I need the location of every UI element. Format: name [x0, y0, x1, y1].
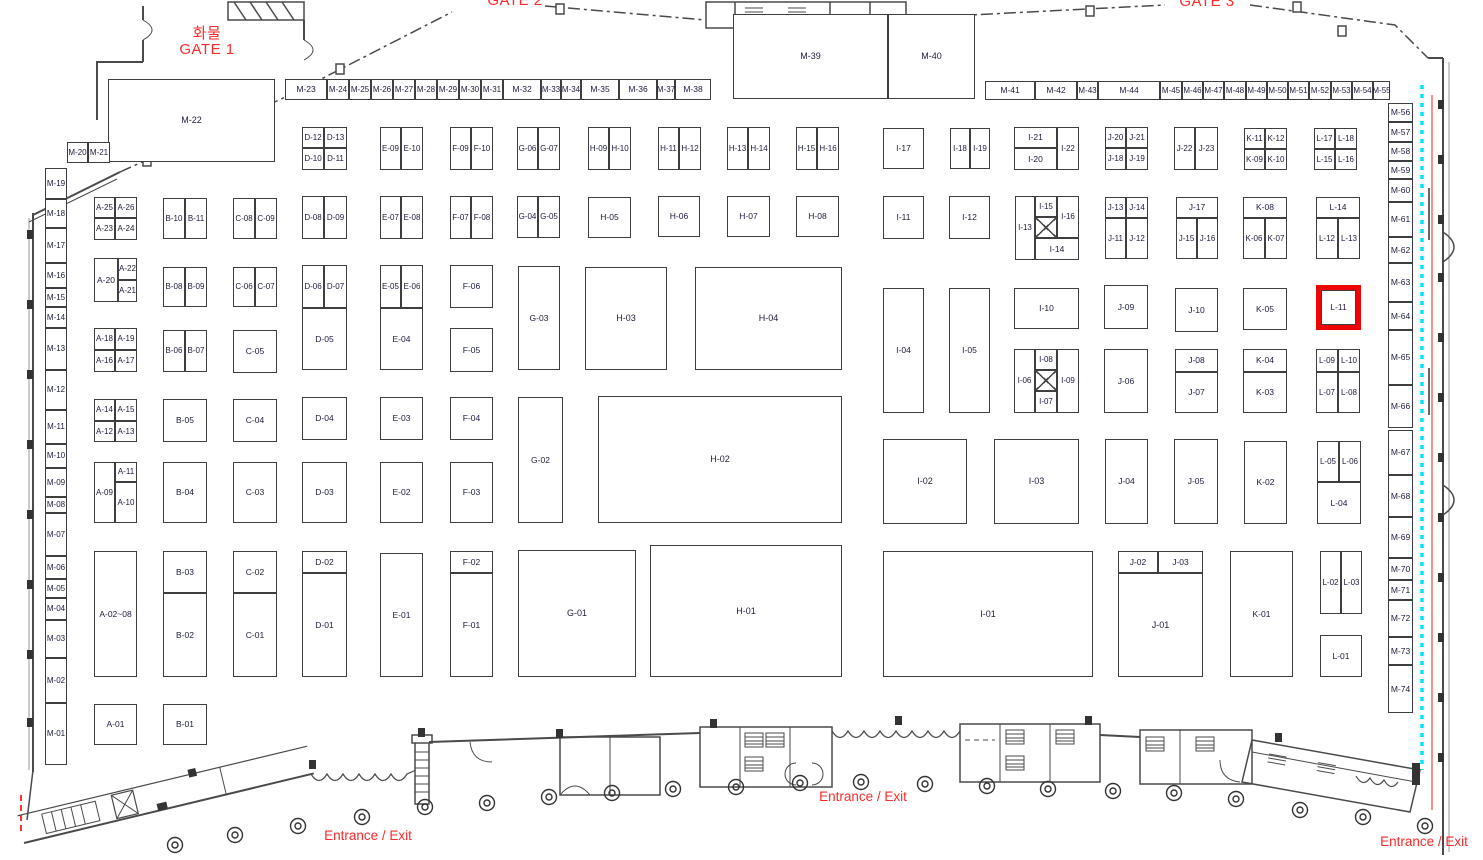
booth-C-03: C-03	[233, 462, 277, 523]
booth-J-22: J-22	[1174, 127, 1195, 170]
booth-D-07: D-07	[324, 265, 347, 308]
booth-M-42: M-42	[1035, 81, 1077, 100]
booth-M-25: M-25	[349, 79, 371, 100]
booth-D-03: D-03	[302, 462, 347, 523]
booth-M-49: M-49	[1246, 81, 1267, 100]
booth-J-05: J-05	[1174, 439, 1218, 524]
booth-F-08: F-08	[471, 196, 493, 239]
booth-M-10: M-10	[45, 444, 67, 468]
booth-K-10: K-10	[1265, 149, 1287, 170]
booth-H-08: H-08	[796, 196, 839, 237]
booth-J-08: J-08	[1175, 349, 1218, 372]
booth-J-11: J-11	[1105, 218, 1126, 259]
booth-A-19: A-19	[115, 328, 137, 350]
booth-M-54: M-54	[1352, 81, 1373, 100]
booth-L-16: L-16	[1335, 149, 1357, 170]
booth-F-05: F-05	[450, 328, 493, 372]
booth-M-14: M-14	[45, 307, 67, 328]
booth-M-33: M-33	[541, 79, 561, 100]
booth-M-71: M-71	[1388, 580, 1413, 600]
booth-A-20: A-20	[94, 258, 118, 302]
booth-J-09: J-09	[1104, 285, 1148, 329]
booth-M-17: M-17	[45, 228, 67, 263]
booth-J-14: J-14	[1126, 197, 1148, 218]
booth-M-45: M-45	[1160, 81, 1182, 100]
booth-J-04: J-04	[1105, 439, 1148, 524]
booth-J-21: J-21	[1126, 127, 1148, 148]
booth-M-16: M-16	[45, 263, 67, 288]
booth-D-02: D-02	[302, 551, 347, 573]
booth-M-57: M-57	[1388, 122, 1413, 142]
booth-M-21: M-21	[88, 142, 110, 163]
booth-E-04: E-04	[380, 308, 423, 370]
booth-A-18: A-18	[94, 328, 115, 350]
booth-M-37: M-37	[657, 79, 675, 100]
booth-K-08: K-08	[1243, 197, 1287, 218]
booth-M-41: M-41	[985, 81, 1035, 100]
booth-J-13: J-13	[1105, 197, 1126, 218]
booth-M-32: M-32	[503, 79, 541, 100]
booth-L-02: L-02	[1320, 551, 1341, 614]
booth-G-03: G-03	[518, 266, 560, 370]
booth-E-07: E-07	[380, 196, 401, 239]
booth-D-01: D-01	[302, 573, 347, 677]
booth-I-09: I-09	[1057, 349, 1079, 413]
booth-M-08: M-08	[45, 497, 67, 513]
booth-K-03: K-03	[1243, 372, 1287, 413]
booth-M-73: M-73	[1388, 637, 1413, 665]
entrance-exit-right-label: Entrance / Exit	[1380, 834, 1468, 849]
booth-J-17: J-17	[1176, 197, 1218, 218]
booth-C-02: C-02	[233, 551, 277, 593]
booth-H-09: H-09	[588, 127, 609, 170]
entrance-exit-left-label: Entrance / Exit	[324, 828, 412, 843]
booth-A-26: A-26	[115, 197, 137, 218]
booth-I-04: I-04	[883, 288, 924, 413]
booth-M-36: M-36	[619, 79, 657, 100]
booth-M-70: M-70	[1388, 558, 1413, 580]
booth-M-74: M-74	[1388, 665, 1413, 713]
booth-E-01: E-01	[380, 553, 423, 677]
booth-H-04: H-04	[695, 267, 842, 370]
booth-A-22: A-22	[118, 258, 137, 280]
booth-M-63: M-63	[1388, 263, 1413, 302]
booth-M-09: M-09	[45, 468, 67, 497]
booth-A-17: A-17	[115, 350, 137, 372]
booth-E-06: E-06	[401, 265, 423, 308]
booth-H-11: H-11	[658, 127, 679, 170]
booth-I-08: I-08	[1035, 349, 1057, 370]
booth-M-24: M-24	[327, 79, 349, 100]
booth-M-03: M-03	[45, 620, 67, 658]
booth-M-50: M-50	[1267, 81, 1288, 100]
booth-A-01: A-01	[94, 704, 137, 745]
booth-D-08: D-08	[302, 196, 324, 239]
booth-I-21: I-21	[1014, 127, 1057, 148]
booth-E-09: E-09	[380, 127, 401, 170]
booth-J-01: J-01	[1118, 573, 1203, 677]
booth-E-08: E-08	[401, 196, 423, 239]
booth-A-09: A-09	[94, 462, 115, 523]
booth-I-14: I-14	[1035, 238, 1079, 260]
booth-M-53: M-53	[1331, 81, 1352, 100]
booth-I-13: I-13	[1015, 196, 1035, 260]
booth-M-39: M-39	[733, 14, 888, 99]
booth-C-04: C-04	[233, 399, 277, 442]
booth-M-11: M-11	[45, 410, 67, 444]
booth-A-02~08: A-02~08	[94, 551, 137, 677]
booth-L-18: L-18	[1335, 128, 1357, 149]
booth-I-19: I-19	[970, 128, 990, 169]
booth-J-03: J-03	[1158, 551, 1203, 573]
booth-M-52: M-52	[1309, 81, 1331, 100]
booth-A-12: A-12	[94, 421, 115, 442]
booth-A-21: A-21	[118, 280, 137, 302]
booth-M-51: M-51	[1288, 81, 1309, 100]
booth-A-10: A-10	[115, 482, 137, 523]
booth-L-05: L-05	[1317, 441, 1339, 482]
booth-B-05: B-05	[163, 399, 207, 442]
booth-K-11: K-11	[1244, 128, 1265, 149]
booth-K-12: K-12	[1265, 128, 1287, 149]
booth-B-09: B-09	[185, 267, 207, 307]
booth-D-04: D-04	[302, 397, 347, 440]
booth-G-06: G-06	[517, 127, 538, 170]
booth-I-12: I-12	[949, 196, 990, 239]
booth-M-43: M-43	[1077, 81, 1098, 100]
booth-H-14: H-14	[748, 127, 770, 170]
booth-C-01: C-01	[233, 593, 277, 677]
booth-M-62: M-62	[1388, 237, 1413, 263]
booth-B-06: B-06	[163, 330, 185, 372]
booth-J-19: J-19	[1126, 148, 1148, 170]
booth-M-02: M-02	[45, 658, 67, 703]
booth-M-31: M-31	[481, 79, 503, 100]
booth-M-61: M-61	[1388, 202, 1413, 237]
booth-I-10: I-10	[1014, 288, 1079, 329]
booth-H-03: H-03	[585, 267, 667, 370]
booth-D-10: D-10	[302, 148, 324, 170]
booth-J-16: J-16	[1197, 218, 1218, 259]
booth-M-01: M-01	[45, 703, 67, 765]
booth-L-15: L-15	[1314, 149, 1335, 170]
booth-D-12: D-12	[302, 127, 324, 148]
booth-M-15: M-15	[45, 288, 67, 307]
gate2-label: GATE 2	[487, 0, 542, 9]
booth-M-48: M-48	[1224, 81, 1246, 100]
booth-A-14: A-14	[94, 399, 115, 421]
booth-L-11: L-11	[1316, 285, 1361, 330]
booth-F-01: F-01	[450, 573, 493, 677]
booth-E-03: E-03	[380, 397, 423, 440]
booth-B-03: B-03	[163, 551, 207, 593]
booth-L-17: L-17	[1314, 128, 1335, 149]
booth-F-10: F-10	[471, 127, 493, 170]
booth-G-07: G-07	[538, 127, 560, 170]
booth-B-04: B-04	[163, 462, 207, 523]
booth-L-12: L-12	[1316, 218, 1338, 259]
booth-M-27: M-27	[393, 79, 415, 100]
booth-A-13: A-13	[115, 421, 137, 442]
booth-C-09: C-09	[255, 198, 277, 239]
booth-M-67: M-67	[1388, 430, 1413, 475]
booth-A-23: A-23	[94, 218, 115, 240]
booth-K-01: K-01	[1230, 551, 1293, 677]
booth-H-16: H-16	[817, 127, 839, 170]
booth-J-07: J-07	[1175, 372, 1218, 413]
booth-I-07: I-07	[1035, 391, 1057, 413]
booth-M-58: M-58	[1388, 142, 1413, 161]
booth-L-13: L-13	[1338, 218, 1360, 259]
booth-K-04: K-04	[1243, 349, 1287, 372]
booth-D-05: D-05	[302, 308, 347, 370]
booth-E-02: E-02	[380, 462, 423, 523]
booth-D-13: D-13	[324, 127, 347, 148]
booth-J-12: J-12	[1126, 218, 1148, 259]
booth-M-06: M-06	[45, 556, 67, 579]
booth-M-56: M-56	[1388, 103, 1413, 122]
booth-M-60: M-60	[1388, 179, 1413, 202]
booth-I-06: I-06	[1014, 349, 1035, 413]
booth-C-05: C-05	[233, 330, 277, 373]
booth-K-05: K-05	[1243, 288, 1287, 330]
booth-M-72: M-72	[1388, 600, 1413, 637]
booth-A-11: A-11	[115, 462, 137, 482]
booth-I-01: I-01	[883, 551, 1093, 677]
booth-J-18: J-18	[1105, 148, 1126, 170]
booth-L-01: L-01	[1320, 635, 1362, 677]
booth-L-09: L-09	[1316, 349, 1338, 372]
booth-B-08: B-08	[163, 267, 185, 307]
booth-M-20: M-20	[67, 142, 88, 163]
booth-J-10: J-10	[1175, 288, 1218, 332]
booth-H-10: H-10	[609, 127, 631, 170]
booth-F-07: F-07	[450, 196, 471, 239]
booth-L-14: L-14	[1316, 197, 1360, 218]
booth-K-06: K-06	[1243, 218, 1265, 259]
booth-crossed-cell	[1035, 370, 1057, 391]
booth-M-59: M-59	[1388, 161, 1413, 179]
booth-M-26: M-26	[371, 79, 393, 100]
booth-J-15: J-15	[1176, 218, 1197, 259]
booth-M-22: M-22	[108, 79, 275, 162]
booth-L-08: L-08	[1338, 372, 1360, 413]
booth-M-28: M-28	[415, 79, 437, 100]
exhibition-floor-plan: A-25A-26A-23A-24A-20A-22A-21A-18A-19A-16…	[0, 0, 1483, 860]
booth-C-07: C-07	[255, 267, 277, 307]
booth-layer: A-25A-26A-23A-24A-20A-22A-21A-18A-19A-16…	[0, 0, 1483, 860]
booth-M-30: M-30	[459, 79, 481, 100]
booth-M-07: M-07	[45, 513, 67, 556]
booth-B-01: B-01	[163, 704, 207, 745]
booth-I-15: I-15	[1035, 196, 1057, 217]
booth-M-19: M-19	[45, 168, 67, 199]
booth-L-03: L-03	[1341, 551, 1362, 614]
booth-M-64: M-64	[1388, 302, 1413, 330]
booth-H-13: H-13	[727, 127, 748, 170]
booth-I-03: I-03	[994, 439, 1079, 524]
booth-F-06: F-06	[450, 265, 493, 308]
booth-A-15: A-15	[115, 399, 137, 421]
booth-M-18: M-18	[45, 199, 67, 228]
booth-E-05: E-05	[380, 265, 401, 308]
cargo-gate-label: 화물	[193, 22, 222, 43]
booth-L-06: L-06	[1339, 441, 1361, 482]
booth-L-07: L-07	[1316, 372, 1338, 413]
booth-M-68: M-68	[1388, 475, 1413, 517]
booth-B-10: B-10	[163, 198, 185, 239]
booth-K-07: K-07	[1265, 218, 1287, 259]
booth-B-11: B-11	[185, 198, 207, 239]
booth-M-35: M-35	[581, 79, 619, 100]
booth-I-02: I-02	[883, 439, 967, 524]
booth-J-02: J-02	[1118, 551, 1158, 573]
booth-M-44: M-44	[1098, 81, 1160, 100]
gate1-label: GATE 1	[179, 41, 234, 58]
booth-M-66: M-66	[1388, 385, 1413, 428]
booth-M-23: M-23	[285, 79, 327, 100]
booth-D-09: D-09	[324, 196, 347, 239]
booth-E-10: E-10	[401, 127, 423, 170]
booth-H-12: H-12	[679, 127, 701, 170]
booth-C-08: C-08	[233, 198, 255, 239]
booth-C-06: C-06	[233, 267, 255, 307]
booth-M-47: M-47	[1203, 81, 1224, 100]
booth-M-46: M-46	[1182, 81, 1203, 100]
booth-crossed-cell	[1035, 217, 1057, 238]
booth-H-02: H-02	[598, 396, 842, 523]
booth-M-05: M-05	[45, 579, 67, 598]
booth-F-03: F-03	[450, 462, 493, 523]
gate3-label: GATE 3	[1179, 0, 1234, 10]
booth-L-04: L-04	[1317, 482, 1361, 524]
booth-M-34: M-34	[561, 79, 581, 100]
booth-J-23: J-23	[1195, 127, 1218, 170]
booth-K-02: K-02	[1244, 441, 1287, 524]
booth-A-24: A-24	[115, 218, 137, 240]
booth-H-05: H-05	[588, 197, 631, 238]
booth-D-06: D-06	[302, 265, 324, 308]
booth-M-69: M-69	[1388, 517, 1413, 558]
booth-I-18: I-18	[950, 128, 970, 169]
booth-M-55: M-55	[1373, 81, 1390, 100]
booth-H-07: H-07	[727, 196, 770, 237]
booth-H-01: H-01	[650, 545, 842, 677]
booth-I-11: I-11	[883, 196, 924, 239]
entrance-exit-center-label: Entrance / Exit	[819, 789, 907, 804]
booth-G-05: G-05	[538, 196, 560, 238]
booth-J-20: J-20	[1105, 127, 1126, 148]
booth-M-40: M-40	[888, 14, 975, 99]
booth-M-38: M-38	[675, 79, 711, 100]
booth-G-04: G-04	[517, 196, 538, 238]
booth-M-29: M-29	[437, 79, 459, 100]
booth-D-11: D-11	[324, 148, 347, 170]
booth-I-17: I-17	[883, 128, 924, 169]
booth-L-10: L-10	[1338, 349, 1360, 372]
booth-I-22: I-22	[1057, 127, 1079, 170]
booth-M-04: M-04	[45, 598, 67, 620]
booth-I-20: I-20	[1014, 148, 1057, 170]
booth-F-04: F-04	[450, 397, 493, 440]
booth-J-06: J-06	[1104, 349, 1148, 413]
booth-I-05: I-05	[949, 288, 990, 413]
booth-H-06: H-06	[658, 196, 700, 237]
booth-M-12: M-12	[45, 370, 67, 410]
booth-A-16: A-16	[94, 350, 115, 372]
booth-B-07: B-07	[185, 330, 207, 372]
booth-G-01: G-01	[518, 550, 636, 677]
booth-F-02: F-02	[450, 551, 493, 573]
booth-B-02: B-02	[163, 593, 207, 677]
booth-M-13: M-13	[45, 328, 67, 370]
booth-H-15: H-15	[796, 127, 817, 170]
booth-K-09: K-09	[1244, 149, 1265, 170]
booth-A-25: A-25	[94, 197, 115, 218]
booth-I-16: I-16	[1057, 196, 1079, 238]
booth-G-02: G-02	[518, 397, 563, 523]
booth-M-65: M-65	[1388, 330, 1413, 385]
booth-F-09: F-09	[450, 127, 471, 170]
